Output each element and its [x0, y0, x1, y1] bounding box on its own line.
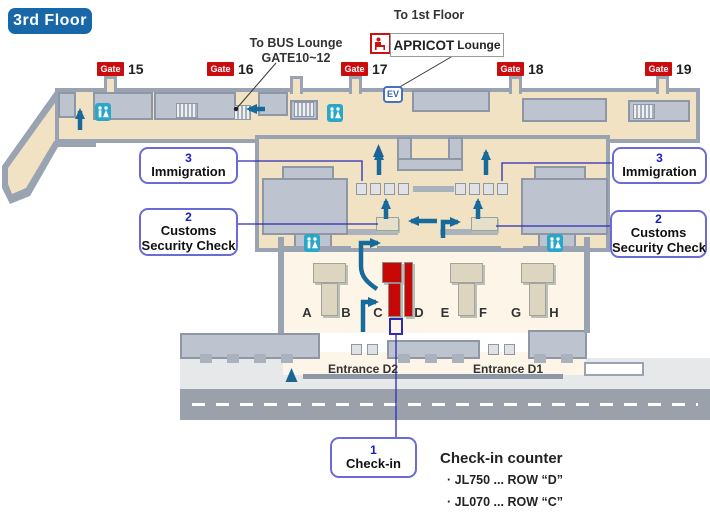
restroom-icon: [327, 104, 343, 122]
immigration-booth: [398, 183, 409, 195]
security-check-counter-right: [471, 217, 498, 231]
checkin-island-ab: [313, 263, 346, 283]
apricot-suffix: Lounge: [457, 38, 500, 52]
apricot-lounge-label: APRICOT Lounge: [390, 33, 504, 57]
callout-customs-right: 2 Customs Security Check: [610, 210, 707, 258]
floor-badge: 3rd Floor: [8, 8, 92, 34]
walkway-extension: [584, 362, 644, 376]
kiosk-block: [367, 344, 378, 355]
building-mass-right: [521, 178, 608, 235]
gate-badge: Gate: [645, 62, 672, 76]
counter-row-letter: D: [412, 305, 426, 320]
counter-row-letter: C: [371, 305, 385, 320]
lounge-icon: [370, 33, 391, 54]
checkin-island-cd-highlighted: [382, 262, 402, 283]
immigration-booth: [356, 183, 367, 195]
kiosk-block: [488, 344, 499, 355]
checkin-island-ef: [458, 283, 475, 316]
step-label: Customs: [612, 226, 705, 240]
callout-customs-left: 2 Customs Security Check: [139, 208, 238, 256]
building-mass-left: [262, 178, 348, 235]
restroom-icon: [304, 234, 320, 252]
jet-bridge-gate-18: [509, 76, 522, 94]
gate-badge: Gate: [207, 62, 234, 76]
gate-number: 18: [528, 61, 544, 77]
gate-badge: Gate: [97, 62, 124, 76]
gate-number: 16: [238, 61, 254, 77]
checkin-highlight-outline: [389, 318, 403, 335]
jet-bridge-gate-19: [656, 76, 669, 94]
bus-lounge-note-line2: GATE10~12: [236, 51, 356, 65]
checkin-island-gh: [529, 283, 546, 316]
counter-row-letter: A: [300, 305, 314, 320]
gate-number: 15: [128, 61, 144, 77]
concourse-room: [412, 90, 490, 112]
road-center-line: [192, 403, 698, 406]
stairs-icon: [176, 103, 198, 118]
legend-item: · JL750 ... ROW “D”: [447, 473, 563, 487]
immigration-booth: [483, 183, 494, 195]
legend-title: Check-in counter: [440, 450, 563, 467]
callout-immigration-right: 3 Immigration: [612, 147, 707, 184]
immigration-booth: [370, 183, 381, 195]
step-number: 3: [614, 152, 705, 165]
restroom-icon: [95, 103, 111, 121]
immigration-booth: [469, 183, 480, 195]
checkin-island-ab: [321, 283, 338, 316]
checkin-island-gh: [521, 263, 554, 283]
immigration-booth: [455, 183, 466, 195]
escalator-icon: [234, 105, 251, 120]
terminal-floor-map: A B C D E F G H EV: [0, 0, 710, 520]
entrance-d1-label: Entrance D1: [448, 362, 568, 376]
legend-item: · JL070 ... ROW “C”: [447, 495, 563, 509]
jet-bridge-gate-17: [349, 76, 362, 94]
hall-wall: [377, 246, 501, 252]
bus-lounge-note-line1: To BUS Lounge: [236, 36, 356, 50]
gate-badge: Gate: [497, 62, 524, 76]
callout-checkin: 1 Check-in: [330, 437, 417, 478]
concourse-room: [258, 92, 288, 116]
gate-number: 17: [372, 61, 388, 77]
jet-bridge-gate-16: [290, 76, 303, 94]
step-label: Immigration: [614, 165, 705, 179]
step-number: 1: [332, 444, 415, 457]
concourse-room: [522, 98, 607, 122]
step-label: Security Check: [612, 241, 705, 255]
counter-row-letter: H: [547, 305, 561, 320]
immigration-booth: [384, 183, 395, 195]
checkin-island-ef: [450, 263, 483, 283]
callout-immigration-left: 3 Immigration: [139, 147, 238, 184]
kiosk-block: [504, 344, 515, 355]
step-label: Immigration: [141, 165, 236, 179]
restroom-icon: [547, 234, 563, 252]
gate-badge: Gate: [341, 62, 368, 76]
security-check-counter-left: [376, 217, 399, 231]
stairs-icon: [294, 102, 314, 117]
immigration-booth: [497, 183, 508, 195]
step-label: Security Check: [141, 239, 236, 253]
step-number: 3: [141, 152, 236, 165]
counter-row-letter: B: [339, 305, 353, 320]
stairs-icon: [633, 104, 655, 119]
step-label: Customs: [141, 224, 236, 238]
apricot-name: APRICOT: [393, 38, 454, 53]
kiosk-block: [351, 344, 362, 355]
gate-number: 19: [676, 61, 692, 77]
pointer-apricot-lounge: [398, 57, 451, 88]
entrance-d2-label: Entrance D2: [303, 362, 423, 376]
counter-row-letter: G: [509, 305, 523, 320]
checkin-island-cd-highlighted: [388, 283, 401, 317]
center-structure: [397, 158, 463, 171]
immigration-divider: [413, 186, 454, 192]
first-floor-note: To 1st Floor: [383, 8, 475, 22]
counter-row-letter: E: [438, 305, 452, 320]
concourse-room: [58, 92, 76, 118]
counter-row-letter: F: [476, 305, 490, 320]
step-label: Check-in: [332, 457, 415, 471]
elevator-icon: EV: [383, 86, 403, 103]
entrance-doors: [200, 354, 304, 363]
